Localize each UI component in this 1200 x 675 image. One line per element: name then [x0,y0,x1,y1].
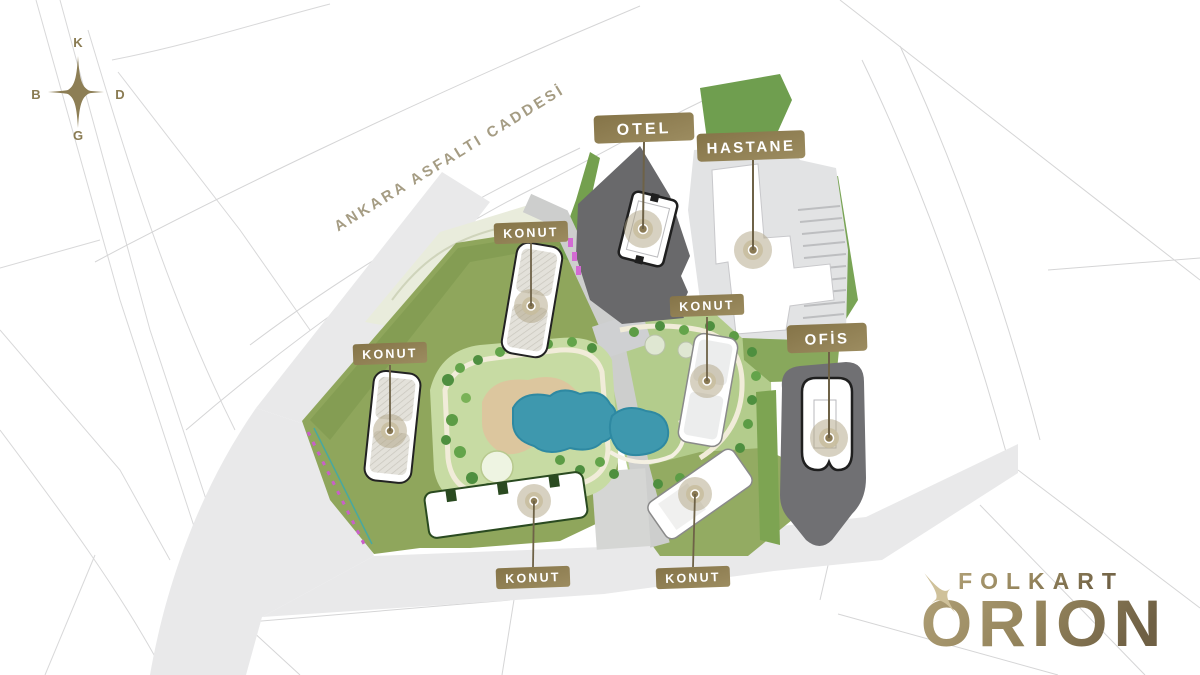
svg-text:KONUT: KONUT [362,346,418,362]
svg-text:KONUT: KONUT [505,570,561,586]
svg-text:D: D [115,87,124,102]
svg-text:OTEL: OTEL [616,120,671,139]
svg-text:KONUT: KONUT [679,298,735,314]
svg-text:B: B [31,87,40,102]
svg-text:K: K [73,35,83,50]
svg-text:ORION: ORION [921,586,1167,660]
svg-text:KONUT: KONUT [503,225,559,241]
svg-text:HASTANE: HASTANE [706,137,795,157]
svg-text:OFİS: OFİS [804,330,850,349]
svg-text:G: G [73,128,83,143]
svg-text:KONUT: KONUT [665,570,721,586]
